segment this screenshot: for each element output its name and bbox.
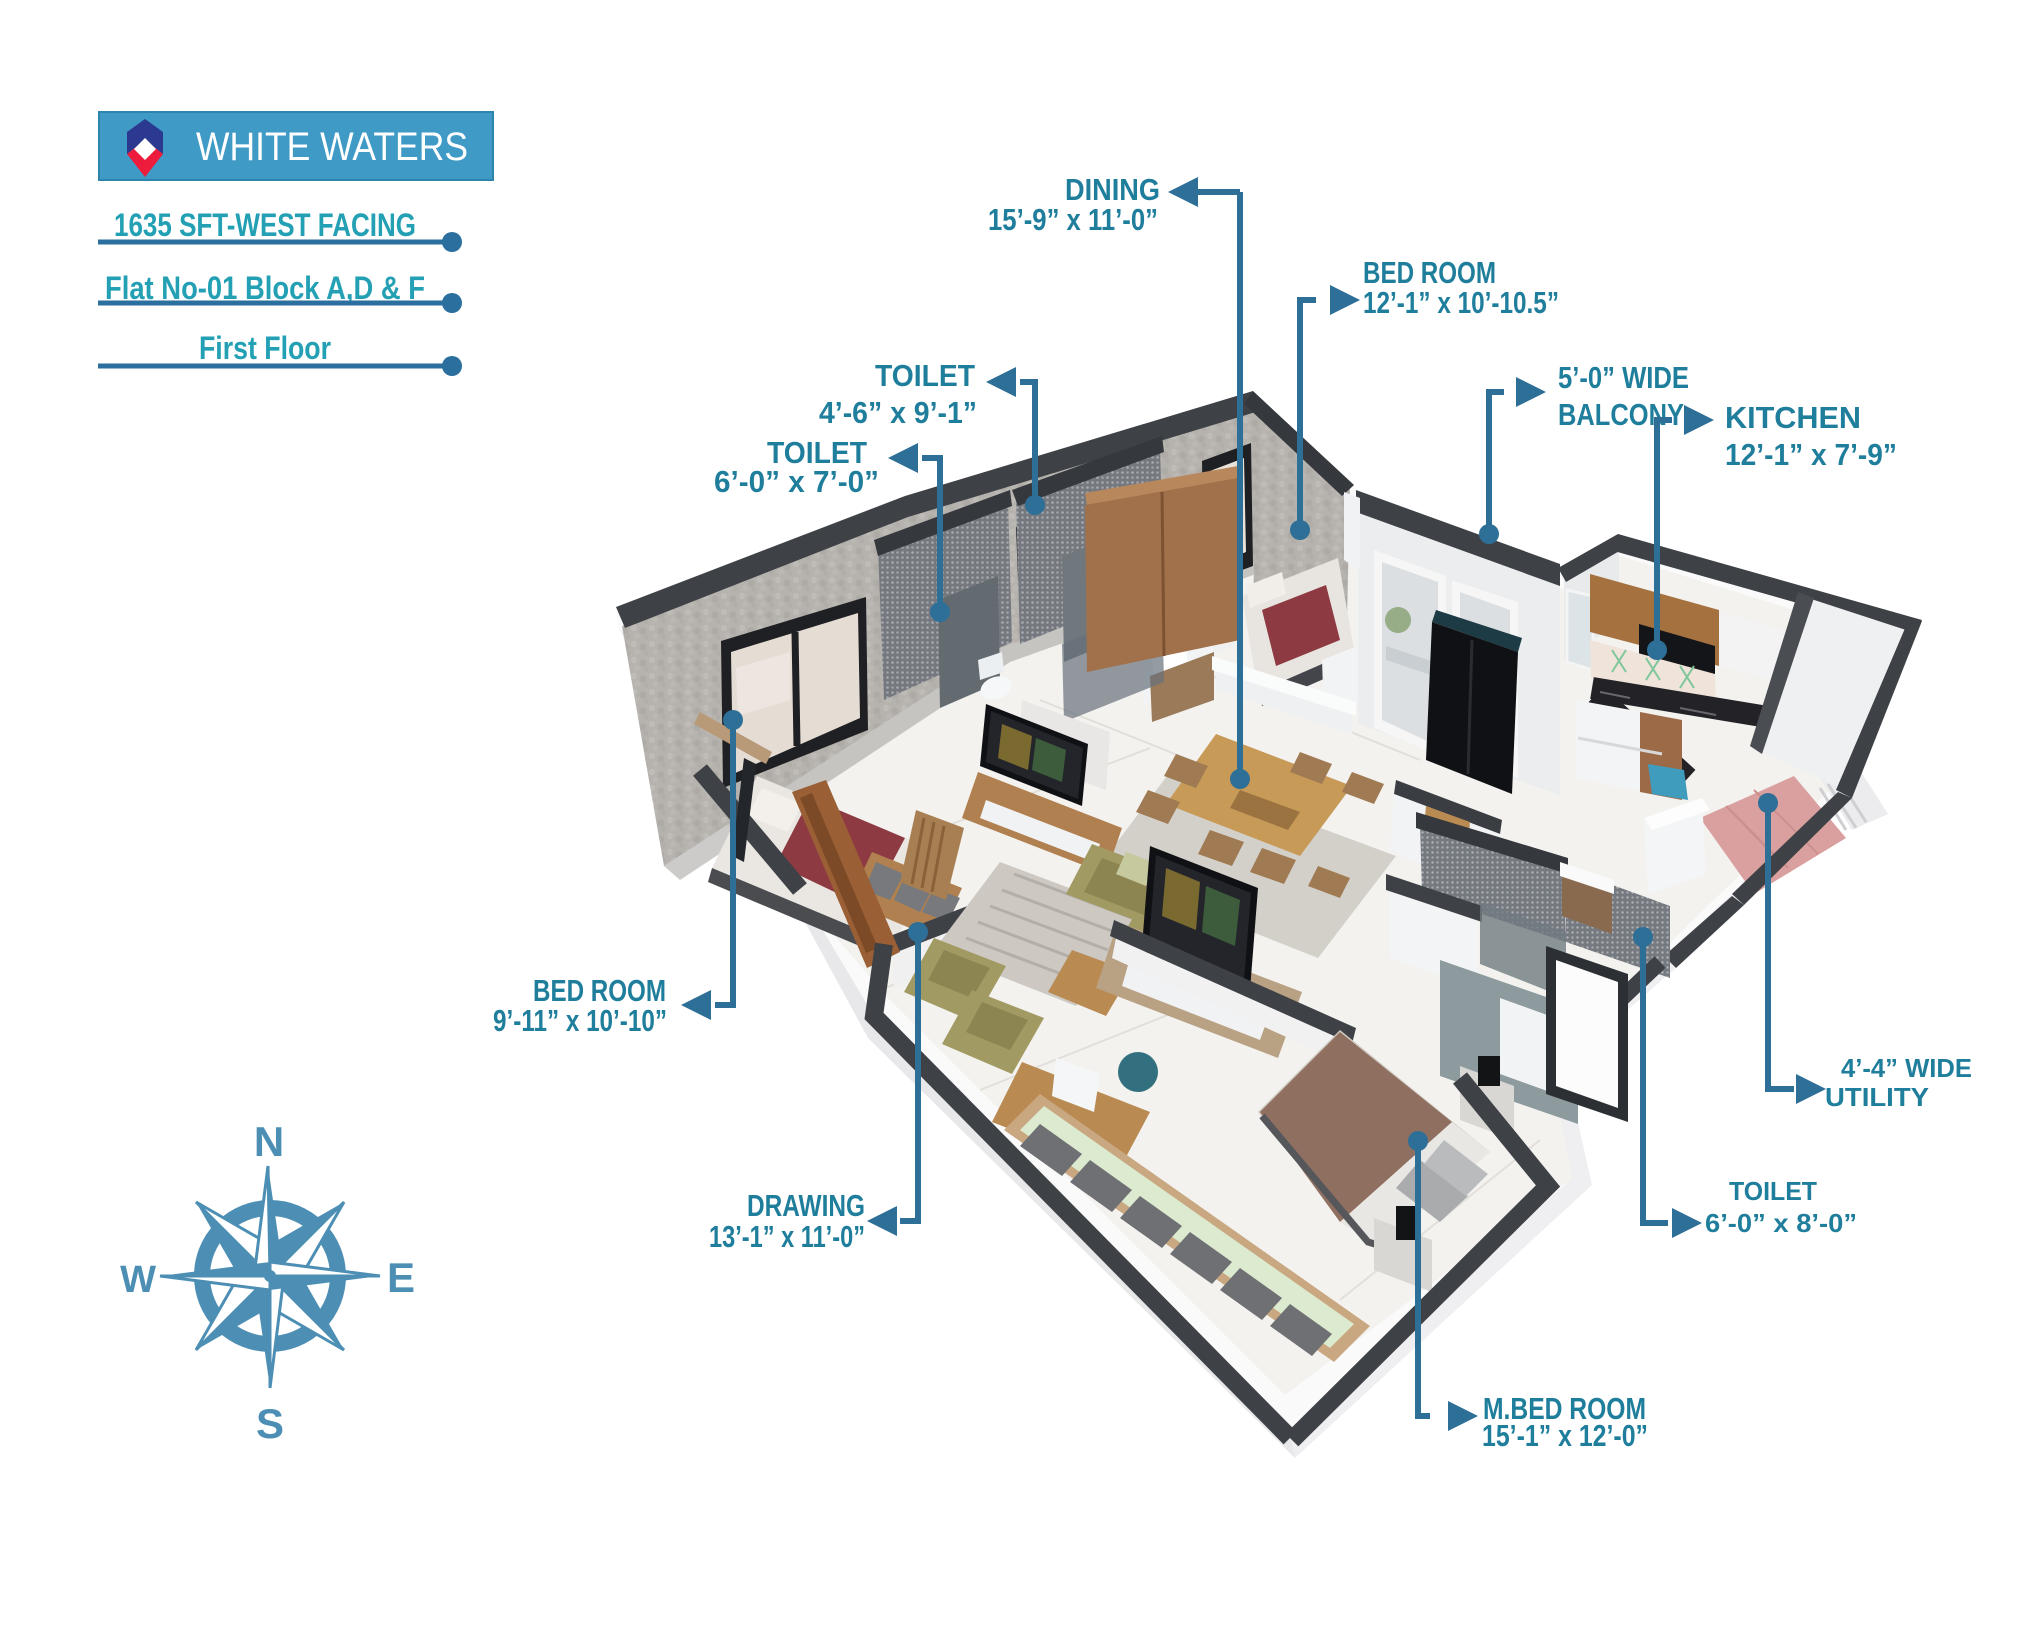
svg-text:1635 SFT-WEST FACING: 1635 SFT-WEST FACING bbox=[114, 207, 416, 243]
svg-text:First Floor: First Floor bbox=[199, 330, 331, 366]
svg-text:13’-1” x 11’-0”: 13’-1” x 11’-0” bbox=[709, 1219, 865, 1254]
svg-text:12’-1” x 7’-9”: 12’-1” x 7’-9” bbox=[1725, 437, 1897, 472]
svg-text:15’-1” x 12’-0”: 15’-1” x 12’-0” bbox=[1482, 1418, 1648, 1453]
svg-text:6’-0” x 7’-0”: 6’-0” x 7’-0” bbox=[714, 464, 879, 499]
svg-text:WHITE WATERS: WHITE WATERS bbox=[196, 125, 468, 169]
svg-text:E: E bbox=[387, 1254, 415, 1301]
svg-text:12’-1” x 10’-10.5”: 12’-1” x 10’-10.5” bbox=[1363, 285, 1559, 320]
svg-text:4’-4” WIDE: 4’-4” WIDE bbox=[1841, 1053, 1972, 1083]
svg-text:N: N bbox=[254, 1118, 284, 1165]
svg-text:TOILET: TOILET bbox=[1729, 1176, 1817, 1206]
svg-text:S: S bbox=[256, 1400, 284, 1447]
svg-text:UTILITY: UTILITY bbox=[1825, 1082, 1929, 1112]
svg-text:6’-0” x 8’-0”: 6’-0” x 8’-0” bbox=[1705, 1208, 1857, 1238]
svg-text:15’-9” x 11’-0”: 15’-9” x 11’-0” bbox=[988, 202, 1158, 237]
svg-text:BALCONY: BALCONY bbox=[1558, 397, 1684, 432]
svg-text:TOILET: TOILET bbox=[875, 358, 975, 393]
svg-text:KITCHEN: KITCHEN bbox=[1725, 400, 1861, 435]
svg-text:4’-6” x 9’-1”: 4’-6” x 9’-1” bbox=[819, 395, 977, 430]
svg-text:W: W bbox=[120, 1259, 156, 1301]
svg-text:DRAWING: DRAWING bbox=[747, 1188, 865, 1223]
svg-text:9’-11” x 10’-10”: 9’-11” x 10’-10” bbox=[493, 1003, 667, 1038]
svg-text:5’-0” WIDE: 5’-0” WIDE bbox=[1558, 360, 1689, 395]
